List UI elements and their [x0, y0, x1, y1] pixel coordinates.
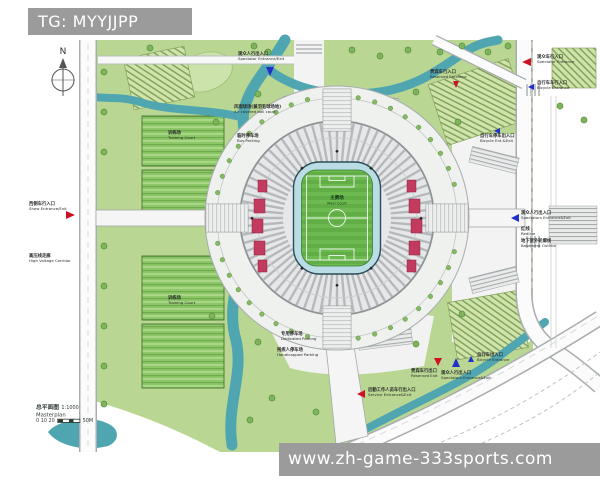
spectators-entrance-s-label: 观众人行出入口Spectators Entrance&Exit: [441, 371, 491, 380]
bicycle-parking-e-marker: [494, 128, 500, 134]
title-block: 总平面图1:1000 Masterplan 0 10 20 50M: [36, 404, 93, 424]
show-entrance-w-marker: [66, 211, 75, 219]
bicycle-parking-e-label: 自行车停车出入口Bicycle Ent.&Exit: [480, 134, 515, 143]
scale-end: 50M: [83, 418, 94, 424]
spectator-vehicle-entrance-ne-label: 观众车行入口Spectator Entrance: [537, 55, 574, 64]
service-entrance-s-label: 后勤工作人员车行出入口Service Entrance&Exit: [368, 388, 416, 397]
handicapped-parking-s-label: 残疾人停车场Handicapped Parking: [277, 348, 318, 357]
spectators-entrance-s-marker: [452, 358, 460, 367]
reserved-entrance-ne-label: 贵宾车行入口Reserved Entrance: [430, 70, 467, 79]
tg-watermark-banner: TG: MYYJJPP: [28, 8, 192, 35]
service-entrance-s-marker: [357, 390, 365, 398]
spectator-entrance-top-label: 观众人行出入口Spectator Entrance/Exit: [238, 52, 284, 61]
site-watermark-banner: www.zh-game-333sports.com: [279, 443, 600, 476]
spectator-entrance-top-marker: [266, 67, 274, 76]
spectators-entrance-e-label: 观众人行出入口Spectators Entrance&Exit: [521, 211, 571, 220]
air-court-nw-label: 风雨球场(兼羽毛球场地)Air covered ball court: [234, 105, 281, 114]
masterplan-page: 主赛场 Main Court N 观众人行出入口Spectator Entran…: [0, 0, 600, 480]
training-court-3-label: 训练场Training Court: [168, 296, 195, 305]
basement-outline-e-label: 地下室外轮廓线Basement Outline: [521, 239, 556, 248]
bicycle-entrance-ne-label: 自行车车行入口Bicycle Entrance: [537, 81, 569, 90]
bus-parking-nw-label: 临时停车场Bus Parking: [237, 134, 260, 143]
scale-numbers: 0 10 20: [36, 418, 55, 424]
bicycle-entrance-ne-marker: [528, 84, 534, 90]
reserved-entrance-ne-marker: [453, 81, 459, 88]
reserved-exit-s-marker: [434, 358, 442, 366]
high-voltage-w-label: 高压线走廊High Voltage Corridor: [29, 254, 71, 263]
spectator-vehicle-entrance-ne-marker: [522, 58, 531, 66]
training-court-1-label: 训练场Training Court: [168, 131, 195, 140]
bicycle-entrance-s-marker: [468, 356, 474, 362]
scale-bar: 0 10 20 50M: [36, 418, 93, 424]
plan-title-en: Masterplan: [36, 411, 93, 418]
plan-title-zh: 总平面图: [36, 404, 59, 411]
plan-scale: 1:1000: [61, 405, 78, 411]
redline-e-label: 红线Redline: [521, 227, 535, 236]
dedicated-parking-s-label: 专用停车场Dedicated Parking: [281, 332, 316, 341]
spectators-entrance-e-marker: [511, 214, 519, 222]
bicycle-entrance-s-label: 自行车出入口Bicycle Entrance: [477, 353, 509, 362]
show-entrance-w-label: 西侧车行入口Show Entrance/Exit: [29, 202, 67, 211]
scale-bar-graphic: [57, 419, 80, 423]
reserved-exit-s-label: 贵宾车行出口Reserved Exit: [411, 369, 438, 378]
